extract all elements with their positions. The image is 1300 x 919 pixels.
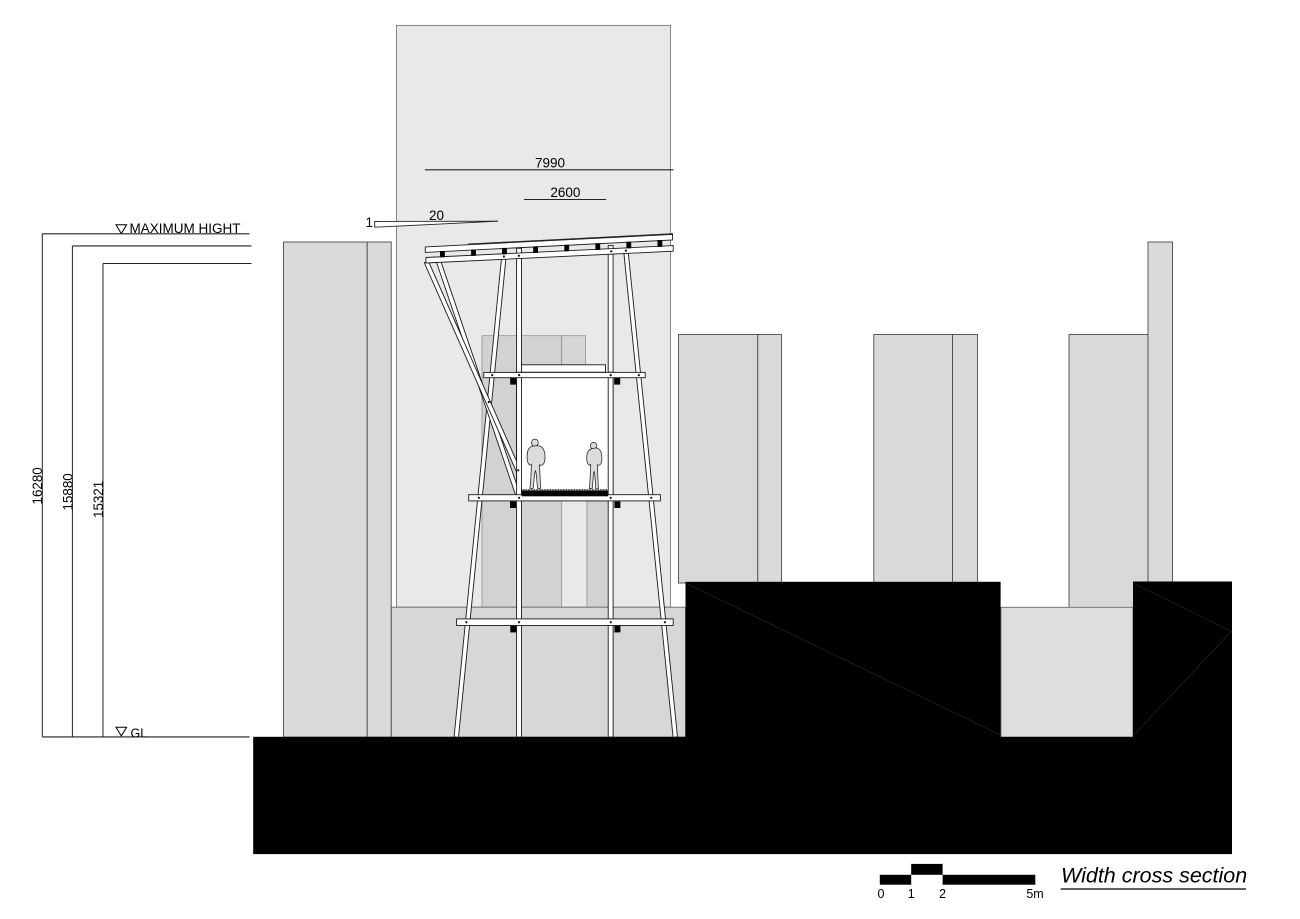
svg-text:1: 1 [366,215,374,230]
svg-text:7990: 7990 [535,156,565,171]
svg-text:Width cross section: Width cross section [1061,863,1247,887]
svg-text:16280: 16280 [30,467,45,504]
svg-text:5m: 5m [1026,887,1043,901]
svg-text:15880: 15880 [60,473,75,510]
svg-text:15321: 15321 [91,481,106,518]
svg-text:1: 1 [908,887,915,901]
svg-text:0: 0 [878,887,885,901]
svg-text:2: 2 [939,887,946,901]
svg-text:2600: 2600 [550,185,580,200]
svg-text:GL: GL [131,727,148,741]
svg-text:20: 20 [429,208,444,223]
